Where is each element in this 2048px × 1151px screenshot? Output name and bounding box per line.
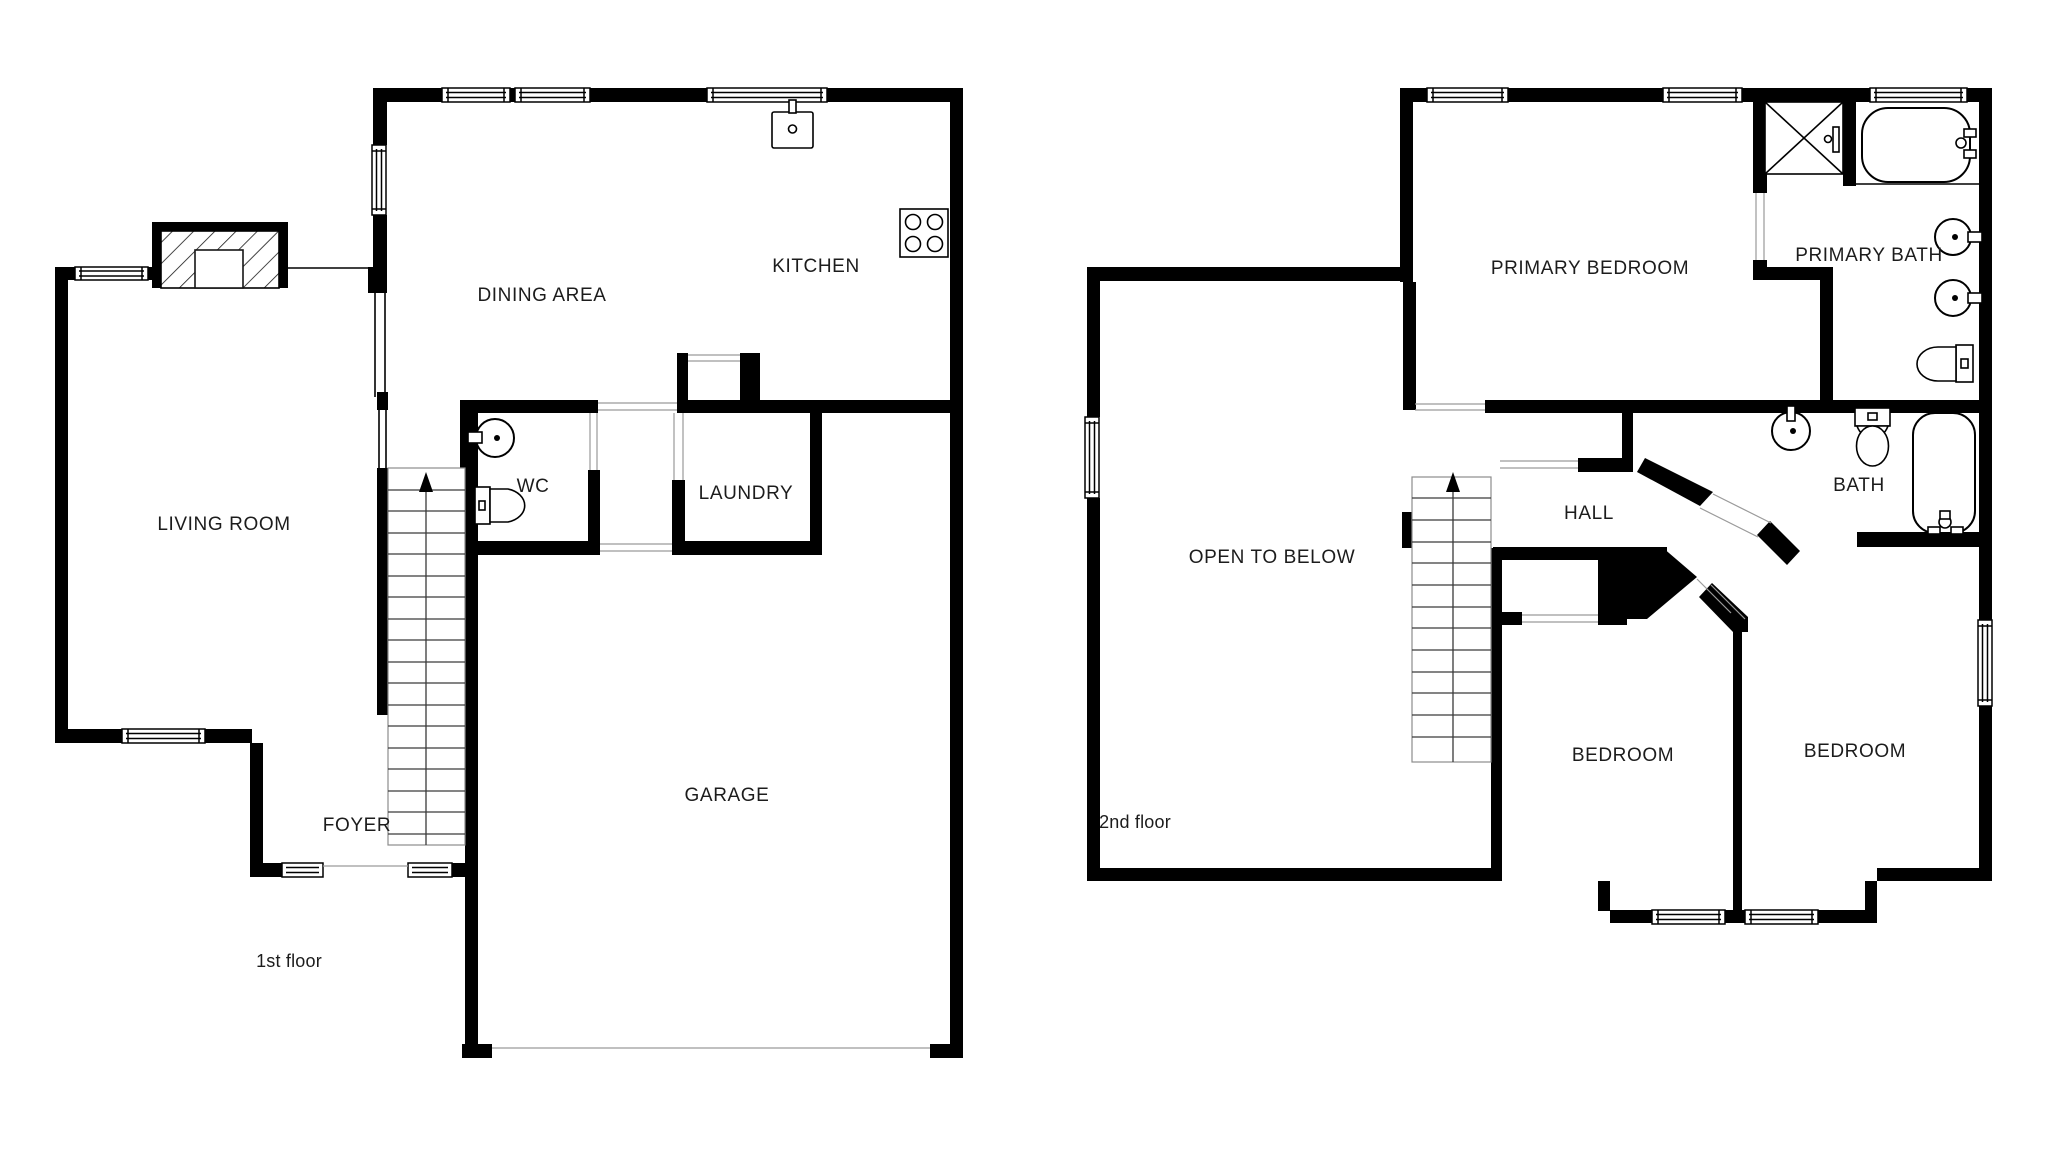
label-garage: GARAGE — [685, 785, 770, 806]
first-floor-plan: LIVING ROOM DINING AREA KITCHEN WC LAUND… — [55, 88, 963, 1058]
second-floor-windows — [1085, 88, 1992, 924]
window — [1745, 910, 1818, 924]
label-foyer: FOYER — [323, 815, 391, 836]
label-bedroom-left: BEDROOM — [1572, 745, 1674, 766]
window — [282, 863, 323, 877]
bath-toilet-icon — [1855, 408, 1890, 466]
window — [442, 88, 510, 102]
window — [1652, 910, 1725, 924]
second-floor-plan: PRIMARY BEDROOM PRIMARY BATH BATH HALL O… — [1085, 88, 1992, 924]
label-living-room: LIVING ROOM — [157, 514, 290, 535]
label-second-floor: 2nd floor — [1099, 812, 1171, 832]
label-hall: HALL — [1564, 503, 1614, 524]
label-laundry: LAUNDRY — [699, 483, 794, 504]
second-floor-walls — [1087, 88, 1992, 923]
window — [515, 88, 590, 102]
window — [1978, 620, 1992, 706]
label-bath: BATH — [1833, 475, 1885, 496]
bathtub-icon — [1862, 108, 1976, 182]
label-dining-area: DINING AREA — [477, 285, 606, 306]
window — [75, 267, 148, 280]
label-kitchen: KITCHEN — [772, 256, 860, 277]
window — [1085, 417, 1099, 498]
window — [408, 863, 452, 877]
window — [707, 88, 827, 102]
label-wc: WC — [517, 476, 550, 497]
window — [1663, 88, 1742, 102]
label-primary-bedroom: PRIMARY BEDROOM — [1491, 258, 1689, 279]
primary-bath-sink-icon — [1935, 280, 1982, 316]
staircase-first-floor — [388, 468, 465, 845]
window — [122, 729, 205, 743]
fireplace-icon — [152, 222, 288, 288]
stove-icon — [900, 209, 948, 257]
kitchen-sink-icon — [772, 100, 813, 148]
window — [1427, 88, 1508, 102]
label-primary-bath: PRIMARY BATH — [1795, 245, 1943, 266]
floorplan-canvas: LIVING ROOM DINING AREA KITCHEN WC LAUND… — [0, 0, 2048, 1151]
primary-bath-toilet-icon — [1917, 345, 1973, 382]
bath-bathtub-icon — [1913, 413, 1975, 534]
label-bedroom-right: BEDROOM — [1804, 741, 1906, 762]
label-first-floor: 1st floor — [256, 951, 322, 971]
staircase-second-floor — [1412, 472, 1491, 762]
shower-icon — [1765, 102, 1843, 174]
window — [372, 145, 386, 215]
label-open-to-below: OPEN TO BELOW — [1189, 547, 1356, 568]
window — [1870, 88, 1967, 102]
